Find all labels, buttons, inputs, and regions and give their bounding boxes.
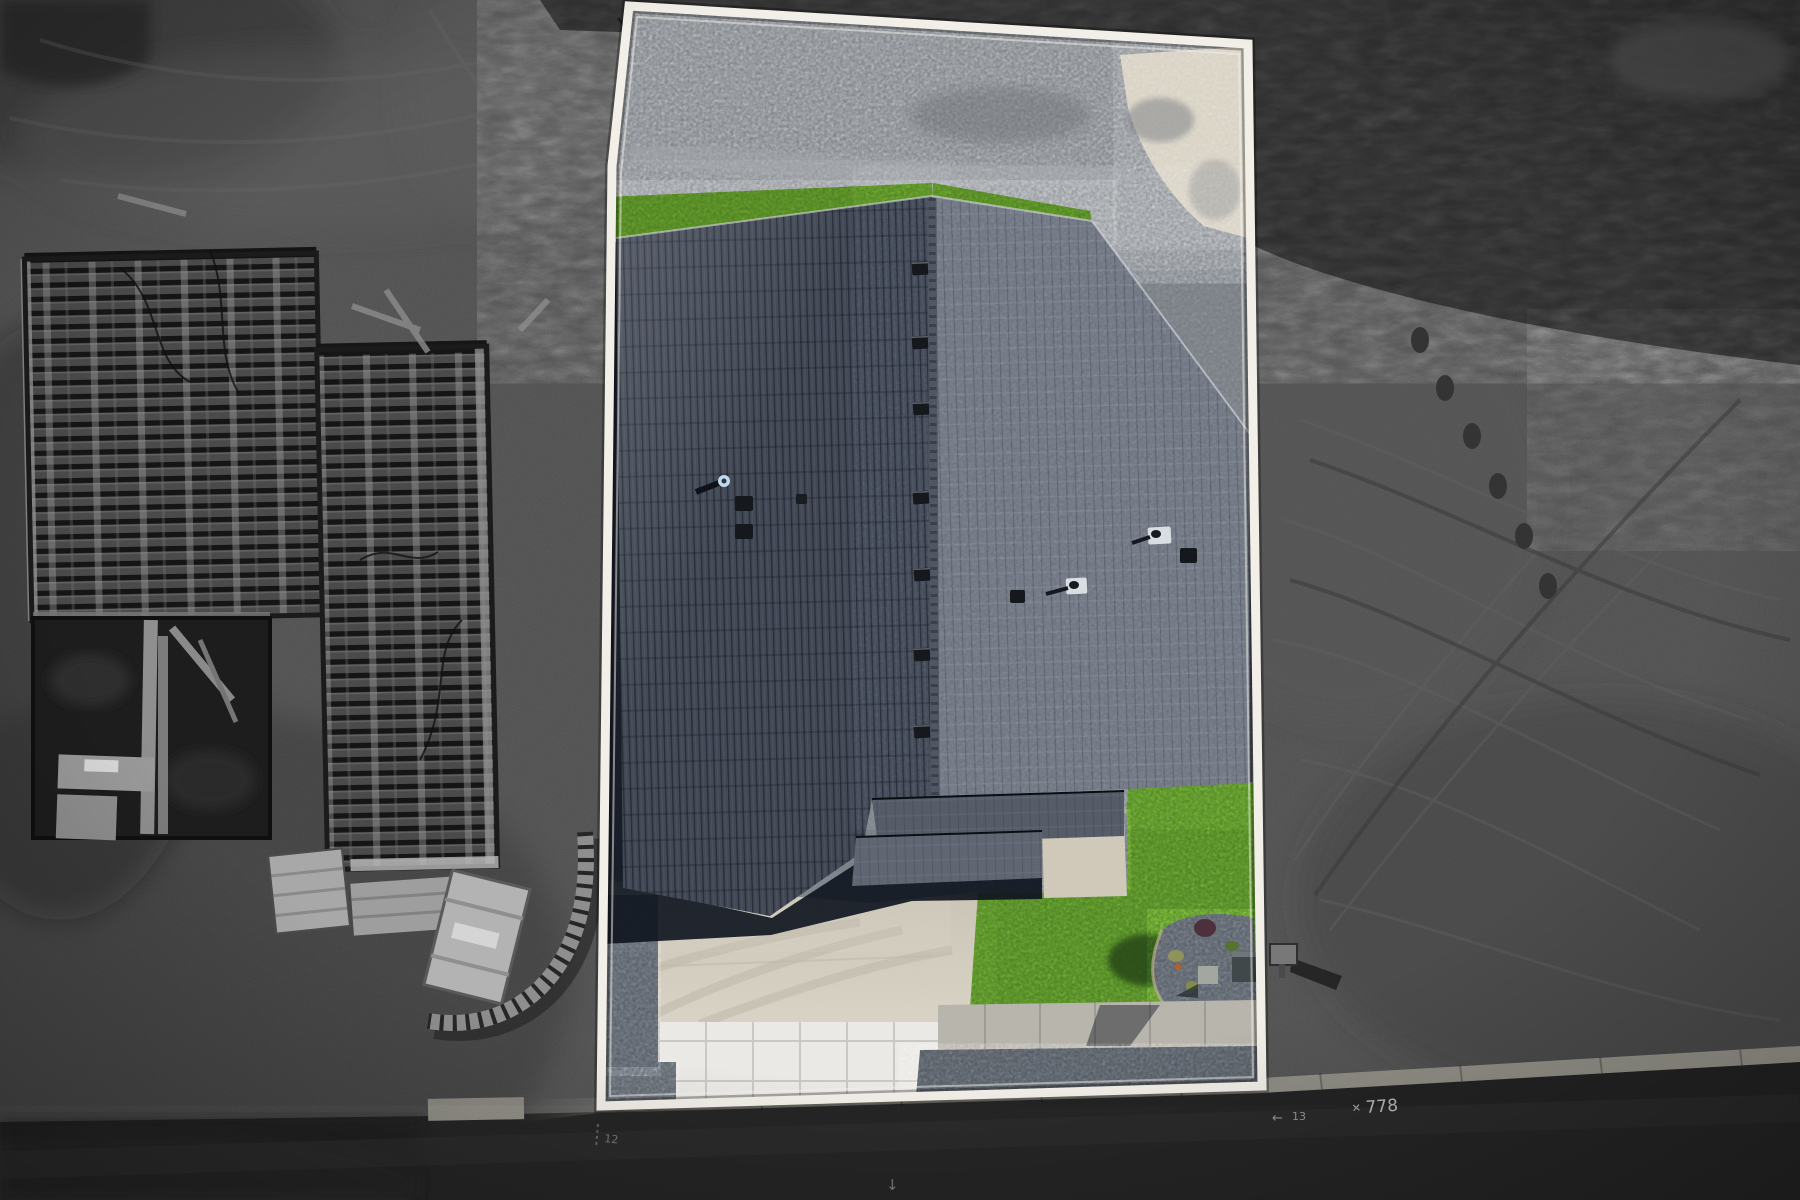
aerial-photo-canvas: ✕ 778 ← 13 12 ↓ bbox=[0, 0, 1800, 1200]
aerial-photo: ✕ 778 ← 13 12 ↓ bbox=[0, 0, 1800, 1200]
vignette bbox=[0, 0, 1800, 1200]
